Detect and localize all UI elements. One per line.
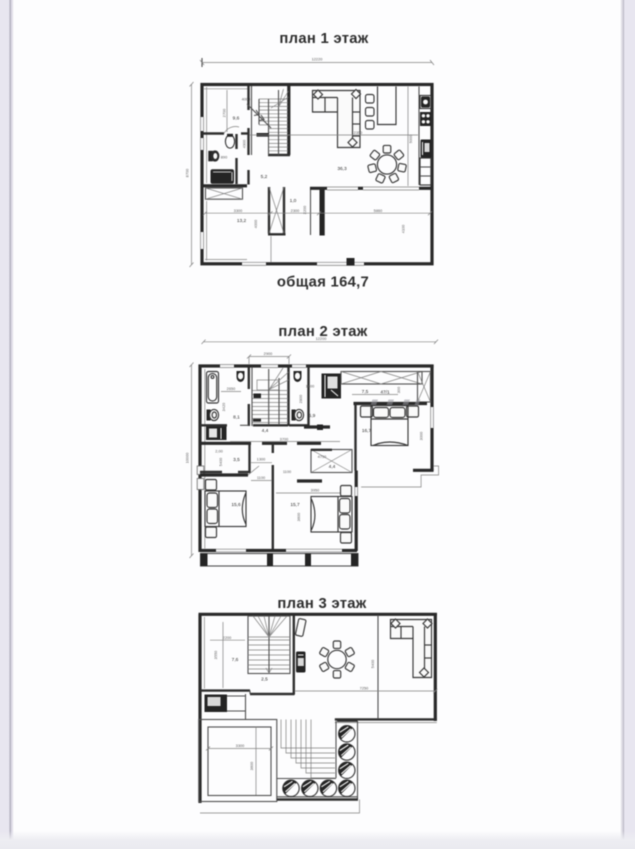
svg-text:1100: 1100 xyxy=(283,469,292,474)
svg-text:16,7: 16,7 xyxy=(362,428,372,434)
svg-text:3550: 3550 xyxy=(213,650,218,659)
svg-text:3600: 3600 xyxy=(296,512,301,521)
svg-text:4000: 4000 xyxy=(253,219,258,228)
svg-text:5860: 5860 xyxy=(374,208,383,213)
svg-text:2900: 2900 xyxy=(264,351,273,356)
svg-text:3300: 3300 xyxy=(234,208,243,213)
svg-text:1,0: 1,0 xyxy=(290,198,297,204)
svg-text:4,4: 4,4 xyxy=(329,464,336,470)
svg-text:1300: 1300 xyxy=(257,457,266,462)
svg-text:1400: 1400 xyxy=(306,384,315,389)
svg-text:13,2: 13,2 xyxy=(237,218,247,224)
svg-text:4,4: 4,4 xyxy=(262,428,269,434)
svg-text:3420: 3420 xyxy=(221,402,226,411)
svg-text:890: 890 xyxy=(221,155,228,160)
svg-text:2800: 2800 xyxy=(298,394,303,403)
svg-text:3950: 3950 xyxy=(311,488,320,493)
svg-text:3300: 3300 xyxy=(236,743,245,748)
svg-text:7250: 7250 xyxy=(360,686,369,691)
svg-text:9,6: 9,6 xyxy=(233,116,240,122)
svg-text:5,9: 5,9 xyxy=(309,413,316,419)
svg-text:общая 164,7: общая 164,7 xyxy=(277,275,369,291)
svg-text:12220: 12220 xyxy=(312,57,324,62)
svg-text:300: 300 xyxy=(396,386,401,393)
svg-text:план 1 этаж: план 1 этаж xyxy=(279,31,368,47)
svg-text:4900: 4900 xyxy=(242,139,247,148)
svg-text:2200: 2200 xyxy=(302,205,307,214)
svg-text:2,5: 2,5 xyxy=(261,677,268,683)
svg-text:4100: 4100 xyxy=(401,224,406,233)
svg-text:5000: 5000 xyxy=(408,134,413,143)
svg-text:15,6: 15,6 xyxy=(231,502,241,508)
svg-text:12200: 12200 xyxy=(316,336,328,341)
svg-text:2,00: 2,00 xyxy=(215,449,223,454)
svg-text:8,1: 8,1 xyxy=(233,415,240,421)
svg-text:3,5: 3,5 xyxy=(233,457,240,463)
svg-text:2300: 2300 xyxy=(291,208,300,213)
svg-text:4750: 4750 xyxy=(318,454,327,459)
svg-text:2350: 2350 xyxy=(354,130,363,135)
svg-text:2700: 2700 xyxy=(222,108,227,117)
svg-text:4000: 4000 xyxy=(242,97,251,102)
svg-text:2650: 2650 xyxy=(227,386,236,391)
svg-text:7,6: 7,6 xyxy=(232,657,239,663)
svg-text:7,5: 7,5 xyxy=(362,389,369,395)
svg-text:1100: 1100 xyxy=(257,475,266,480)
svg-text:3600: 3600 xyxy=(249,761,254,770)
svg-text:2200: 2200 xyxy=(223,635,232,640)
svg-text:3000: 3000 xyxy=(419,431,424,440)
svg-text:8700: 8700 xyxy=(185,168,190,177)
svg-text:5400: 5400 xyxy=(218,457,223,466)
svg-text:5400: 5400 xyxy=(370,659,375,668)
svg-text:15,7: 15,7 xyxy=(290,502,300,508)
svg-text:3700: 3700 xyxy=(280,436,289,441)
svg-text:36,3: 36,3 xyxy=(337,166,347,172)
svg-text:5,2: 5,2 xyxy=(261,174,268,180)
svg-text:10000: 10000 xyxy=(185,452,190,464)
svg-text:план 3 этаж: план 3 этаж xyxy=(277,596,366,612)
